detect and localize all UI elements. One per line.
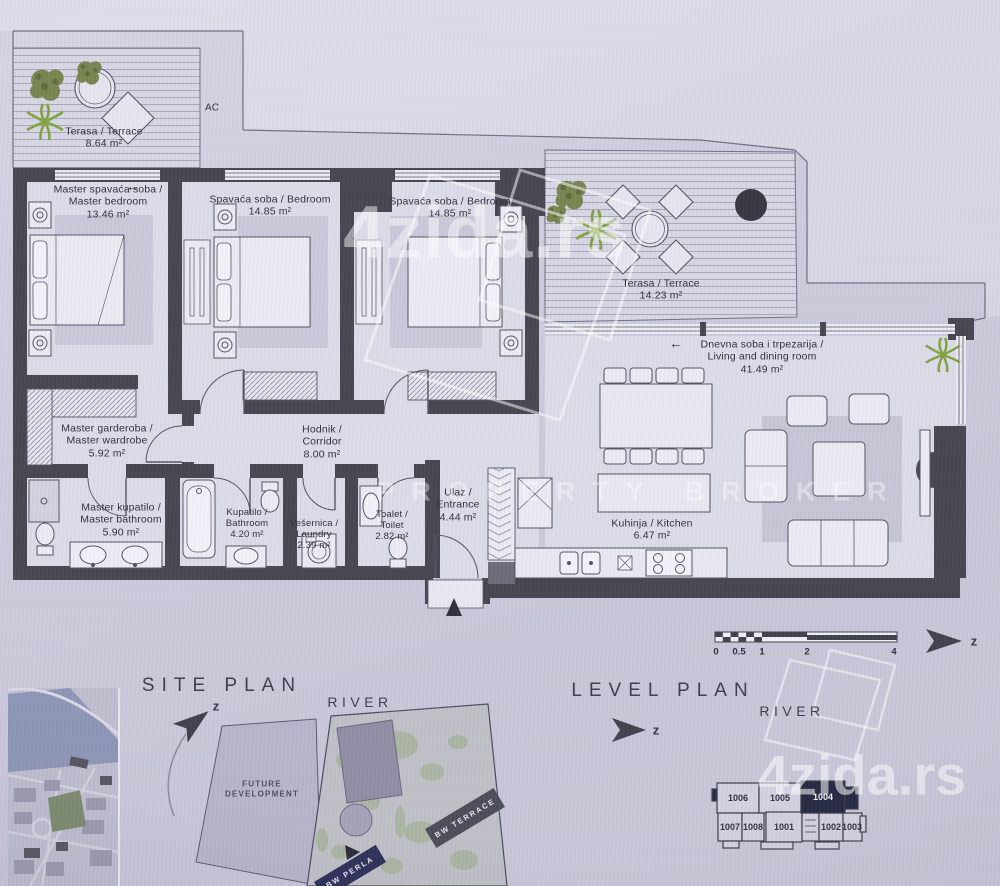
site-plan-river-label: RIVER xyxy=(327,694,392,710)
shaft-block xyxy=(488,562,515,584)
unit-1002: 1002 xyxy=(821,822,841,832)
level-north-arrow xyxy=(612,718,646,742)
floorplan-photo: Terasa / Terrace8.64 m² Master spavaća s… xyxy=(0,0,1000,886)
room-label-kitchen: Kuhinja / Kitchen6.47 m² xyxy=(611,518,692,543)
brand-watermark-top: 4zida.rs xyxy=(343,190,627,275)
scale-tick: 0 xyxy=(713,647,718,658)
scale-tick: 2 xyxy=(804,647,809,658)
scale-tick: 1 xyxy=(759,647,764,658)
scale-tick: 0.5 xyxy=(732,647,745,658)
level-plan-river-label: RIVER xyxy=(759,703,824,719)
room-label-laundry: Vešernica /Laundry2.39 m² xyxy=(290,518,339,552)
unit-1007: 1007 xyxy=(720,822,740,832)
room-label-bathroom: Kupatilo /Bathroom4.20 m² xyxy=(226,507,268,541)
site-plan-graphics xyxy=(168,702,507,886)
dining-table xyxy=(600,384,712,448)
future-development-area xyxy=(196,719,321,886)
ac-label: AC xyxy=(205,103,219,114)
brand-watermark-bottom: 4zida.rs xyxy=(758,743,967,808)
plant-icon xyxy=(77,61,102,84)
unit-1008: 1008 xyxy=(743,822,763,832)
room-label-master-bathroom: Master kupatilo /Master bathroom5.90 m² xyxy=(80,501,162,538)
room-label-corridor: Hodnik /Corridor8.00 m² xyxy=(302,423,342,460)
site-plan-title: SITE PLAN xyxy=(142,675,302,697)
site-plan-north-label: z xyxy=(213,699,220,714)
unit-1001: 1001 xyxy=(774,822,794,832)
scale-tick: 4 xyxy=(891,647,896,658)
room-label-master-wardrobe: Master garderoba /Master wardrobe5.92 m² xyxy=(61,422,152,459)
map-thumbnail xyxy=(8,688,120,886)
future-development-label: FUTUREDEVELOPMENT xyxy=(225,780,299,801)
room-label-toilet: Toalet /Toilet2.82 m² xyxy=(375,509,408,543)
scale-north-label: z xyxy=(971,634,978,649)
room-label-living-room: Dnevna soba i trpezarija /Living and din… xyxy=(701,338,824,375)
level-plan-north-label: z xyxy=(653,723,660,738)
room-label-bedroom-2: Spavaća soba / Bedroom14.85 m² xyxy=(209,194,330,219)
unit-1006: 1006 xyxy=(728,793,748,803)
plant-icon xyxy=(30,70,64,101)
unit-1003: 1003 xyxy=(842,822,862,832)
room-label-terrace-1: Terasa / Terrace8.64 m² xyxy=(65,126,143,151)
tv xyxy=(920,430,930,516)
room-label-master-bedroom: Master spavaća soba /Master bedroom13.46… xyxy=(54,183,163,220)
terrace-tree xyxy=(735,189,767,221)
room-label-terrace-2: Terasa / Terrace14.23 m² xyxy=(622,278,700,303)
scale-north-arrow xyxy=(926,629,962,653)
master-bedroom-arrow-icon: ← xyxy=(126,178,140,194)
site-north-arrow xyxy=(173,702,216,743)
page-light-area xyxy=(0,0,243,31)
level-plan-title: LEVEL PLAN xyxy=(571,680,754,702)
site-building-main xyxy=(337,720,402,803)
bed-master xyxy=(29,202,153,356)
living-room-arrow-icon: ← xyxy=(669,335,683,351)
property-broker-watermark: PROPERTY BROKER xyxy=(376,477,904,508)
site-building-round xyxy=(340,804,372,836)
